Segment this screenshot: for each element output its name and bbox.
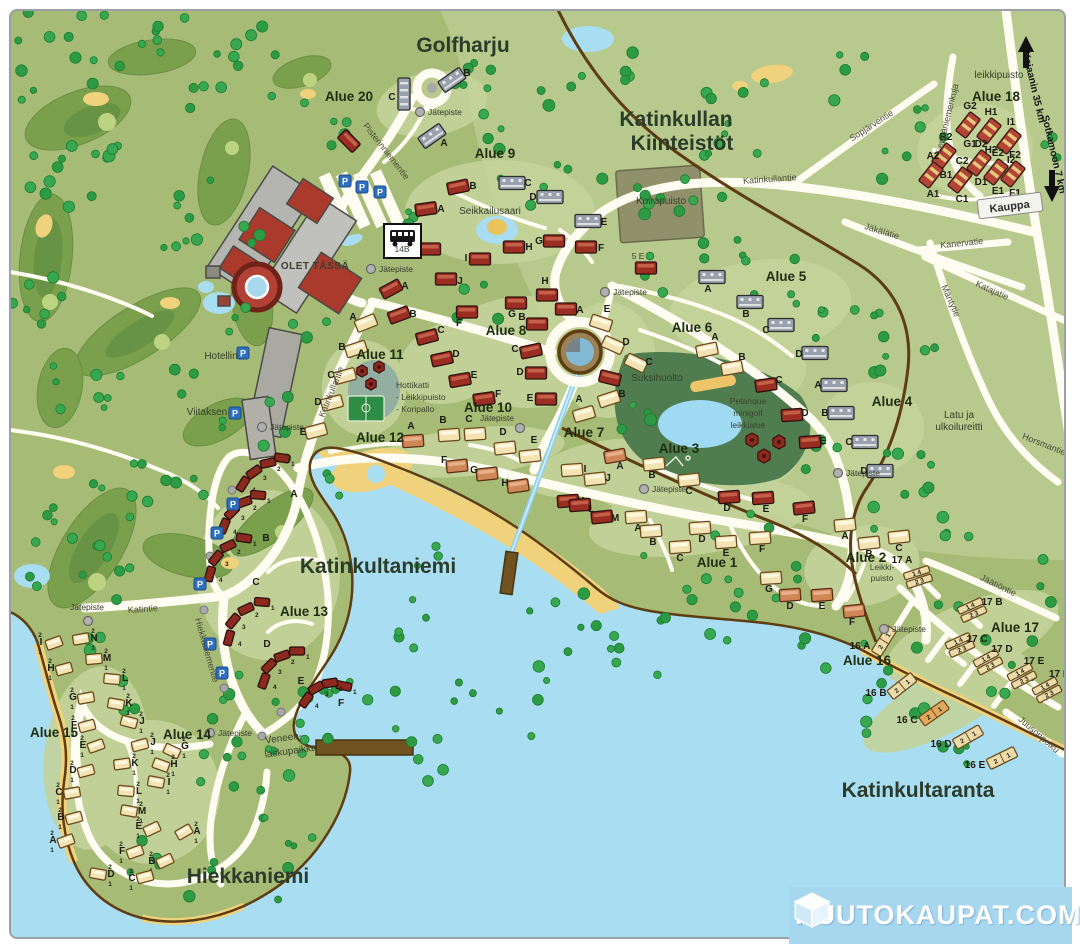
jatepiste-icon	[640, 485, 649, 494]
parking-letter: P	[214, 529, 220, 539]
tree-icon	[862, 729, 871, 738]
building	[781, 408, 803, 421]
tree-icon	[282, 391, 293, 402]
parking-letter: P	[232, 409, 238, 419]
building	[636, 262, 657, 274]
building	[476, 467, 498, 481]
tree-icon	[262, 815, 268, 821]
unit-number: 2	[122, 668, 126, 675]
unit-number: 2	[136, 816, 140, 823]
tree-icon	[1027, 636, 1038, 647]
tree-icon	[850, 306, 859, 315]
building	[858, 536, 880, 550]
area-label: Alue 7	[564, 425, 605, 440]
tree-icon	[100, 11, 108, 19]
unit-number: 2	[149, 851, 153, 858]
unit-number: 2	[253, 505, 257, 512]
building	[470, 253, 491, 265]
building-letter: A	[814, 380, 821, 391]
tree-icon	[658, 288, 668, 298]
tree-icon	[706, 93, 716, 103]
building	[438, 428, 460, 441]
building	[737, 296, 763, 309]
seikkailusaari-island	[487, 219, 507, 235]
tree-icon	[700, 254, 709, 263]
parking-letter: P	[230, 500, 236, 510]
unit-number: 2	[132, 753, 136, 760]
map-label: leikkipuisto	[975, 70, 1024, 81]
building-letter: A	[437, 204, 444, 215]
map-label: Seikkailusaari	[459, 206, 521, 217]
tree-icon	[238, 752, 246, 760]
tree-icon	[717, 192, 726, 201]
tree-icon	[902, 152, 911, 161]
building-letter: D	[723, 503, 730, 514]
unit-number: 2	[150, 732, 154, 739]
building-letter: G	[765, 584, 773, 595]
building-letter: A1	[927, 189, 940, 200]
tree-icon	[268, 92, 276, 100]
tree-icon	[614, 643, 624, 653]
building	[576, 241, 597, 253]
tree-icon	[818, 307, 824, 313]
building	[561, 463, 583, 476]
map-label: minigolf	[733, 408, 763, 418]
tree-icon	[597, 173, 608, 184]
tree-icon	[57, 292, 66, 301]
building	[584, 472, 606, 486]
jatepiste-icon	[416, 108, 425, 117]
path-marker	[228, 486, 236, 494]
tree-icon	[639, 208, 651, 220]
tree-icon	[483, 133, 493, 143]
area-label: Alue 8	[486, 323, 527, 338]
tree-icon	[283, 770, 295, 782]
area-label: Alue 10	[464, 400, 512, 415]
tree-icon	[875, 365, 886, 376]
building-letter: G	[470, 465, 478, 476]
unit-number: 2	[166, 772, 170, 779]
tree-icon	[16, 65, 28, 77]
building	[811, 588, 833, 601]
unit-number: 1	[80, 752, 84, 759]
tree-icon	[423, 776, 434, 787]
parking-letter: P	[197, 580, 203, 590]
building-letter: E	[601, 217, 608, 228]
tree-icon	[794, 575, 802, 583]
building	[828, 407, 854, 420]
huutokaupat-watermark: HUUTOKAUPAT.COM	[789, 887, 1072, 944]
map-frame: CBAABCDEFGHIJKABCDEFGHABCDEFABCDEABCDEFG…	[0, 0, 1080, 951]
unit-number: 1	[182, 753, 186, 760]
unit-number: 1	[70, 704, 74, 711]
unit-number: 2	[48, 658, 52, 665]
tree-icon	[323, 318, 331, 326]
tree-icon	[183, 238, 189, 244]
building	[63, 787, 80, 800]
tree-icon	[742, 257, 751, 266]
area-label: Alue 18	[972, 89, 1021, 104]
jatepiste-icon	[601, 288, 610, 297]
tree-icon	[528, 733, 535, 740]
jatepiste-label: Jätepiste	[652, 484, 686, 494]
tree-icon	[392, 726, 399, 733]
tree-icon	[95, 540, 106, 551]
hot-tub-center	[750, 438, 754, 442]
tree-icon	[232, 314, 239, 321]
tree-icon	[323, 733, 334, 744]
tree-icon	[772, 594, 780, 602]
building-letter: H1	[985, 107, 998, 118]
unit-number: 3	[325, 691, 329, 698]
building	[526, 367, 547, 379]
building	[625, 510, 647, 523]
unit-number: 2	[70, 687, 74, 694]
tree-icon	[738, 87, 748, 97]
tree-icon	[50, 363, 57, 370]
area-label: Alue 20	[325, 89, 373, 104]
tree-icon	[15, 37, 22, 44]
tree-icon	[174, 202, 181, 209]
tree-icon	[271, 51, 279, 59]
building	[415, 202, 437, 217]
unit-number: 4	[315, 703, 319, 710]
building	[699, 271, 725, 284]
building-letter: C	[524, 178, 531, 189]
building	[643, 457, 665, 471]
tree-icon	[207, 713, 218, 724]
building	[755, 378, 777, 393]
tree-icon	[40, 309, 50, 319]
tree-icon	[406, 737, 416, 747]
building	[537, 191, 563, 204]
tree-icon	[67, 533, 77, 543]
jatepiste-label: Jätepiste	[892, 624, 926, 634]
building	[834, 518, 856, 532]
tree-icon	[331, 118, 338, 125]
path-marker	[200, 606, 208, 614]
tree-icon	[554, 161, 561, 168]
building	[250, 490, 266, 499]
parking-letter: P	[240, 349, 246, 359]
building-letter: 17 A	[892, 555, 913, 566]
building	[802, 347, 828, 360]
building-letter: C	[645, 357, 652, 368]
tree-icon	[199, 750, 208, 759]
tree-icon	[747, 510, 755, 518]
building-letter: E2	[992, 148, 1005, 159]
tree-icon	[363, 695, 373, 705]
tree-icon	[257, 21, 268, 32]
unit-number: 3	[242, 624, 246, 631]
building-letter: C2	[956, 156, 969, 167]
building	[420, 243, 441, 255]
tree-icon	[723, 637, 731, 645]
tree-icon	[760, 79, 768, 87]
building-letter: B	[618, 389, 625, 400]
tree-icon	[567, 82, 576, 91]
tree-icon	[479, 109, 489, 119]
tree-icon	[1038, 554, 1048, 564]
map-label: leikkialue	[731, 420, 766, 430]
unit-number: 2	[237, 549, 241, 556]
tree-icon	[1000, 688, 1010, 698]
tree-icon	[406, 209, 412, 215]
building	[843, 604, 865, 618]
tree-icon	[103, 553, 112, 562]
tree-icon	[683, 585, 691, 593]
jatepiste-icon	[834, 469, 843, 478]
unit-number: 1	[48, 675, 52, 682]
tree-icon	[654, 671, 662, 679]
unit-number: 4	[219, 577, 223, 584]
unit-number: 2	[129, 868, 133, 875]
tree-icon	[931, 344, 939, 352]
unit-number: 2	[56, 782, 60, 789]
jatepiste-label: Jätepiste	[428, 107, 462, 117]
path-marker	[220, 684, 228, 692]
building-letter: 16 B	[865, 688, 886, 699]
tree-icon	[915, 122, 925, 132]
tree-icon	[44, 176, 55, 187]
tree-icon	[285, 840, 291, 846]
tree-icon	[409, 597, 415, 603]
unit-number: 1	[122, 685, 126, 692]
tree-icon	[327, 141, 336, 150]
tree-icon	[308, 834, 316, 842]
building-letter: C	[762, 325, 769, 336]
building-letter: J	[605, 473, 611, 484]
area-label: Alue 3	[659, 441, 700, 456]
tree-icon	[423, 614, 430, 621]
tree-icon	[641, 552, 647, 558]
building	[446, 459, 468, 473]
building	[519, 449, 541, 463]
building-letter: D	[698, 534, 705, 545]
tree-icon	[138, 460, 147, 469]
unit-number: 1	[129, 885, 133, 892]
building	[852, 436, 878, 449]
tree-icon	[185, 213, 194, 222]
tree-icon	[455, 679, 462, 686]
map-label: Katintie	[127, 603, 158, 615]
building-letter: C	[895, 543, 902, 554]
unit-number: 2	[255, 612, 259, 619]
tree-icon	[51, 519, 57, 525]
tree-icon	[25, 182, 36, 193]
tree-icon	[92, 150, 100, 158]
building	[436, 273, 457, 285]
tree-icon	[32, 582, 41, 591]
tree-icon	[564, 165, 572, 173]
building	[113, 758, 130, 770]
tree-icon	[79, 571, 86, 578]
tree-icon	[197, 777, 205, 785]
tree-icon	[540, 183, 548, 191]
tree-icon	[44, 32, 55, 43]
tree-icon	[43, 510, 53, 520]
jatepiste-icon	[880, 625, 889, 634]
tree-icon	[246, 30, 257, 41]
tree-icon	[612, 658, 621, 667]
tree-icon	[451, 698, 458, 705]
building-letter: F2	[1009, 150, 1021, 161]
map-label: ulkoilureitti	[935, 422, 982, 433]
tree-icon	[138, 40, 145, 47]
building-letter: E	[820, 436, 827, 447]
building	[236, 533, 252, 543]
building	[507, 479, 529, 494]
building-letter: E	[527, 393, 534, 404]
unit-number: 4	[273, 684, 277, 691]
tree-icon	[66, 141, 77, 152]
tree-icon	[698, 238, 709, 249]
jatepiste-label: Jätepiste	[846, 468, 880, 478]
unit-number: 2	[171, 754, 175, 761]
jatepiste-label: Jätepiste	[218, 728, 252, 738]
building-letter: 17 D	[991, 644, 1012, 655]
building	[760, 571, 782, 584]
map-label: Koirapuisto	[636, 196, 686, 207]
jatepiste-label: Jätepiste	[613, 287, 647, 297]
building-letter: B	[439, 415, 446, 426]
tree-icon	[1008, 661, 1015, 668]
tree-icon	[883, 449, 891, 457]
tree-icon	[87, 78, 98, 89]
tree-icon	[77, 11, 87, 21]
tree-icon	[214, 51, 221, 58]
tree-icon	[410, 644, 418, 652]
tree-icon	[610, 631, 619, 640]
tree-icon	[527, 608, 533, 614]
tree-icon	[840, 64, 851, 75]
tree-icon	[63, 201, 74, 212]
building	[104, 673, 121, 684]
building-letter: F	[338, 698, 344, 709]
tree-icon	[877, 678, 887, 688]
building	[120, 805, 137, 818]
building-letter: F	[441, 455, 447, 466]
building-letter: G	[535, 236, 543, 247]
tree-icon	[913, 106, 921, 114]
tree-icon	[219, 424, 226, 431]
unit-number: 2	[291, 659, 295, 666]
jatepiste-icon	[258, 423, 267, 432]
tree-icon	[390, 686, 400, 696]
tree-icon	[25, 280, 35, 290]
building-letter: C	[388, 92, 395, 103]
tree-icon	[674, 206, 685, 217]
tree-icon	[1045, 597, 1056, 608]
tree-icon	[833, 443, 842, 452]
map-label: Petanque	[730, 396, 767, 406]
tree-icon	[233, 61, 243, 71]
parking-letter: P	[342, 177, 348, 187]
building	[72, 633, 89, 646]
tree-icon	[99, 485, 105, 491]
map-label: Katinkultaranta	[842, 779, 995, 802]
tree-icon	[37, 320, 46, 329]
unit-number: 2	[104, 648, 108, 655]
unit-number: 2	[126, 693, 130, 700]
building-letter: C	[685, 486, 692, 497]
tree-icon	[701, 574, 711, 584]
tree-icon	[52, 162, 63, 173]
huutokaupat-cube-icon	[789, 887, 835, 933]
tree-icon	[868, 501, 880, 513]
tree-icon	[940, 531, 950, 541]
building-letter: I	[465, 253, 468, 264]
building	[86, 653, 103, 664]
tree-icon	[18, 96, 25, 103]
map-label: - Leikkipuisto	[396, 392, 446, 402]
tree-icon	[790, 254, 800, 264]
unit-number: 2	[139, 711, 143, 718]
jatepiste-icon	[516, 424, 525, 433]
area-label: Alue 14	[163, 727, 212, 742]
unit-number: 1	[253, 541, 257, 548]
building-letter: F	[456, 318, 462, 329]
building-letter: A	[290, 489, 297, 500]
tree-icon	[223, 753, 231, 761]
tree-icon	[126, 513, 134, 521]
map-label: OLET TÄSSÄ	[281, 259, 349, 272]
tree-icon	[30, 152, 38, 160]
unit-number: 2	[80, 735, 84, 742]
building	[290, 647, 305, 655]
building	[536, 393, 557, 405]
building-letter: E	[298, 676, 305, 687]
tree-icon	[413, 755, 423, 765]
tree-icon	[112, 595, 122, 605]
hot-tub-center	[777, 440, 781, 444]
hot-tub-center	[377, 365, 381, 369]
unit-number: 1	[171, 771, 175, 778]
tree-icon	[216, 82, 227, 93]
building-letter: C	[465, 414, 472, 425]
building-letter: I1	[1007, 117, 1016, 128]
area-label: Alue 6	[672, 320, 713, 335]
jatepiste-label: Jätepiste	[379, 264, 413, 274]
building-letter: F	[495, 389, 501, 400]
tree-icon	[257, 786, 265, 794]
unit-number: 3	[278, 669, 282, 676]
tree-icon	[296, 719, 305, 728]
tree-icon	[725, 576, 732, 583]
tree-icon	[812, 334, 819, 341]
tree-icon	[821, 663, 832, 674]
tree-icon	[551, 598, 560, 607]
unit-number: 1	[132, 770, 136, 777]
building-letter: J	[457, 276, 463, 287]
tree-icon	[248, 239, 256, 247]
unit-number: 3	[241, 515, 245, 522]
tree-icon	[127, 491, 137, 501]
tree-icon	[533, 694, 544, 705]
tree-icon	[747, 610, 757, 620]
unit-number: 2	[277, 466, 281, 473]
area-label: Alue 13	[280, 604, 329, 619]
tree-icon	[791, 561, 801, 571]
building-letter: A	[575, 394, 582, 405]
tree-icon	[186, 103, 195, 112]
building-letter: 17 C	[966, 634, 987, 645]
tree-icon	[56, 404, 65, 413]
tree-icon	[130, 460, 137, 467]
tree-icon	[199, 490, 209, 500]
building-letter: D2	[975, 139, 988, 150]
building-letter: C	[252, 577, 259, 588]
